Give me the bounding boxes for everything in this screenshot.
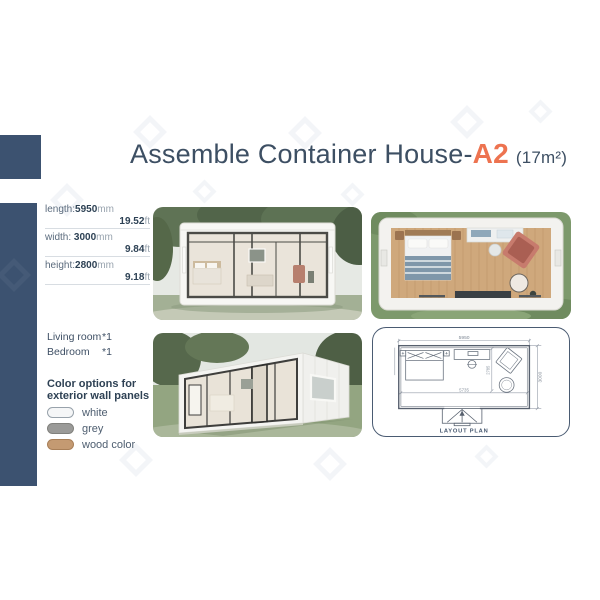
swatch-row-grey: grey [47, 423, 167, 434]
photo-exterior-angle [153, 333, 362, 437]
plan-dim-interior-width: 2785 [485, 365, 490, 375]
spec-label: width: [45, 232, 74, 243]
spec-metric-unit: mm [97, 260, 114, 271]
product-sheet-page: Assemble Container House-A2(17m²) length… [0, 0, 600, 600]
watermark-logo [192, 179, 216, 203]
page-title: Assemble Container House-A2(17m²) [130, 138, 567, 170]
photo-front-elevation [153, 207, 362, 320]
spec-metric-unit: mm [96, 232, 113, 243]
title-accent-bar [0, 135, 41, 179]
dimension-specs: length:5950mm 19.52ft width: 3000mm 9.84… [45, 204, 150, 288]
swatch-label: white [82, 407, 108, 419]
spec-label: length: [45, 204, 75, 215]
plan-dim-exterior-width: 3000 [537, 371, 543, 382]
watermark-logo [474, 444, 498, 468]
layout-plan: 5950 3000 5735 2785 [372, 327, 570, 437]
spec-imperial-value: 9.18 [125, 272, 144, 283]
watermark-logo [450, 105, 484, 139]
watermark-logo [528, 99, 552, 123]
room-name: Bedroom [47, 346, 102, 358]
watermark-logo [313, 447, 347, 481]
room-count: *1 [102, 346, 112, 358]
spec-label: height: [45, 260, 75, 271]
room-name: Living room [47, 331, 102, 343]
spec-width: width: 3000mm 9.84ft [45, 232, 150, 257]
swatch-row-wood: wood color [47, 439, 167, 450]
spec-metric-value: 2800 [75, 260, 97, 271]
spec-length: length:5950mm 19.52ft [45, 204, 150, 229]
wood-swatch-icon [47, 439, 74, 450]
spec-metric-value: 5950 [75, 204, 97, 215]
title-main: Assemble Container House- [130, 139, 473, 169]
room-count: *1 [102, 331, 112, 343]
title-model: A2 [473, 138, 509, 169]
white-swatch-icon [47, 407, 74, 418]
plan-caption: LAYOUT PLAN [440, 429, 489, 435]
spec-imperial-unit: ft [144, 272, 150, 283]
swatch-row-white: white [47, 407, 167, 418]
room-list: Living room *1 Bedroom *1 [47, 331, 147, 361]
sidebar-accent-bar [0, 203, 37, 486]
spec-imperial-unit: ft [144, 216, 150, 227]
spec-imperial-unit: ft [144, 244, 150, 255]
color-options-panel: Color options for exterior wall panels w… [47, 379, 167, 450]
swatch-label: wood color [82, 439, 135, 451]
room-item: Living room *1 [47, 331, 147, 343]
spec-imperial-value: 19.52 [119, 216, 144, 227]
swatch-label: grey [82, 423, 103, 435]
spec-metric-unit: mm [97, 204, 114, 215]
watermark-logo [0, 258, 31, 292]
plan-dim-exterior-length: 5950 [459, 335, 470, 341]
watermark-logo [340, 182, 364, 206]
title-area: (17m²) [516, 148, 567, 167]
spec-height: height:2800mm 9.18ft [45, 260, 150, 285]
spec-imperial-value: 9.84 [125, 244, 144, 255]
color-options-heading: Color options for exterior wall panels [47, 379, 167, 402]
plan-dim-interior-length: 5735 [459, 387, 469, 392]
room-item: Bedroom *1 [47, 346, 147, 358]
grey-swatch-icon [47, 423, 74, 434]
spec-metric-value: 3000 [74, 232, 96, 243]
photo-top-down-interior [371, 212, 571, 319]
